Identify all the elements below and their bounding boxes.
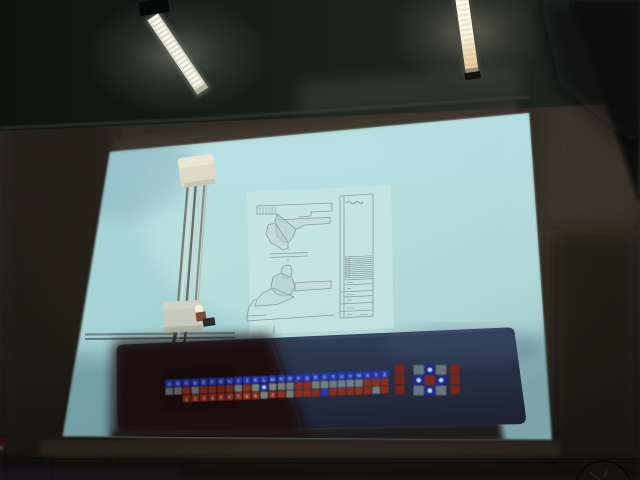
svg-text:U: U — [340, 374, 343, 379]
svg-text:Y: Y — [375, 372, 378, 377]
svg-text:I: I — [238, 378, 239, 383]
svg-text:S: S — [323, 375, 326, 380]
svg-text:L: L — [263, 377, 266, 382]
svg-text:O: O — [288, 376, 292, 381]
svg-text:P: P — [297, 376, 300, 381]
svg-text:M: M — [271, 377, 275, 382]
svg-text:Z: Z — [383, 372, 386, 377]
svg-text:X: X — [366, 373, 369, 378]
svg-text:Q: Q — [305, 375, 309, 380]
svg-text:T: T — [332, 374, 335, 379]
svg-text:J: J — [246, 378, 248, 383]
svg-text:N: N — [280, 377, 283, 382]
svg-text:W: W — [357, 373, 362, 378]
